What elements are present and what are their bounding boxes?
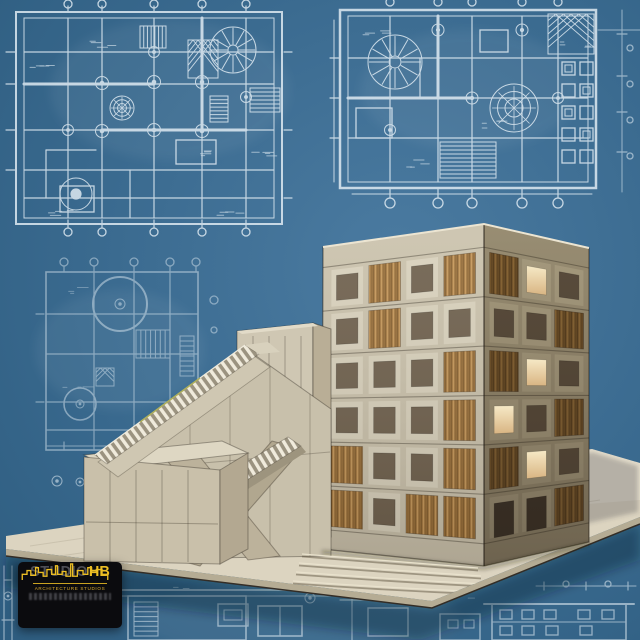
city-skyline-icon [18,562,112,581]
logo-tagline: ARCHITECTURE STUDIOS [35,586,106,591]
model-tower [322,224,589,566]
logo-ghost-text [29,593,111,600]
poster-canvas: STUDIO HB ARCHITECTURE STUDIOS [0,0,640,640]
tower-right-facade [484,224,589,566]
tower-left-facade [322,224,484,566]
logo-divider [33,583,107,584]
studio-logo: STUDIO HB ARCHITECTURE STUDIOS [18,562,122,628]
architectural-scene [0,0,640,640]
